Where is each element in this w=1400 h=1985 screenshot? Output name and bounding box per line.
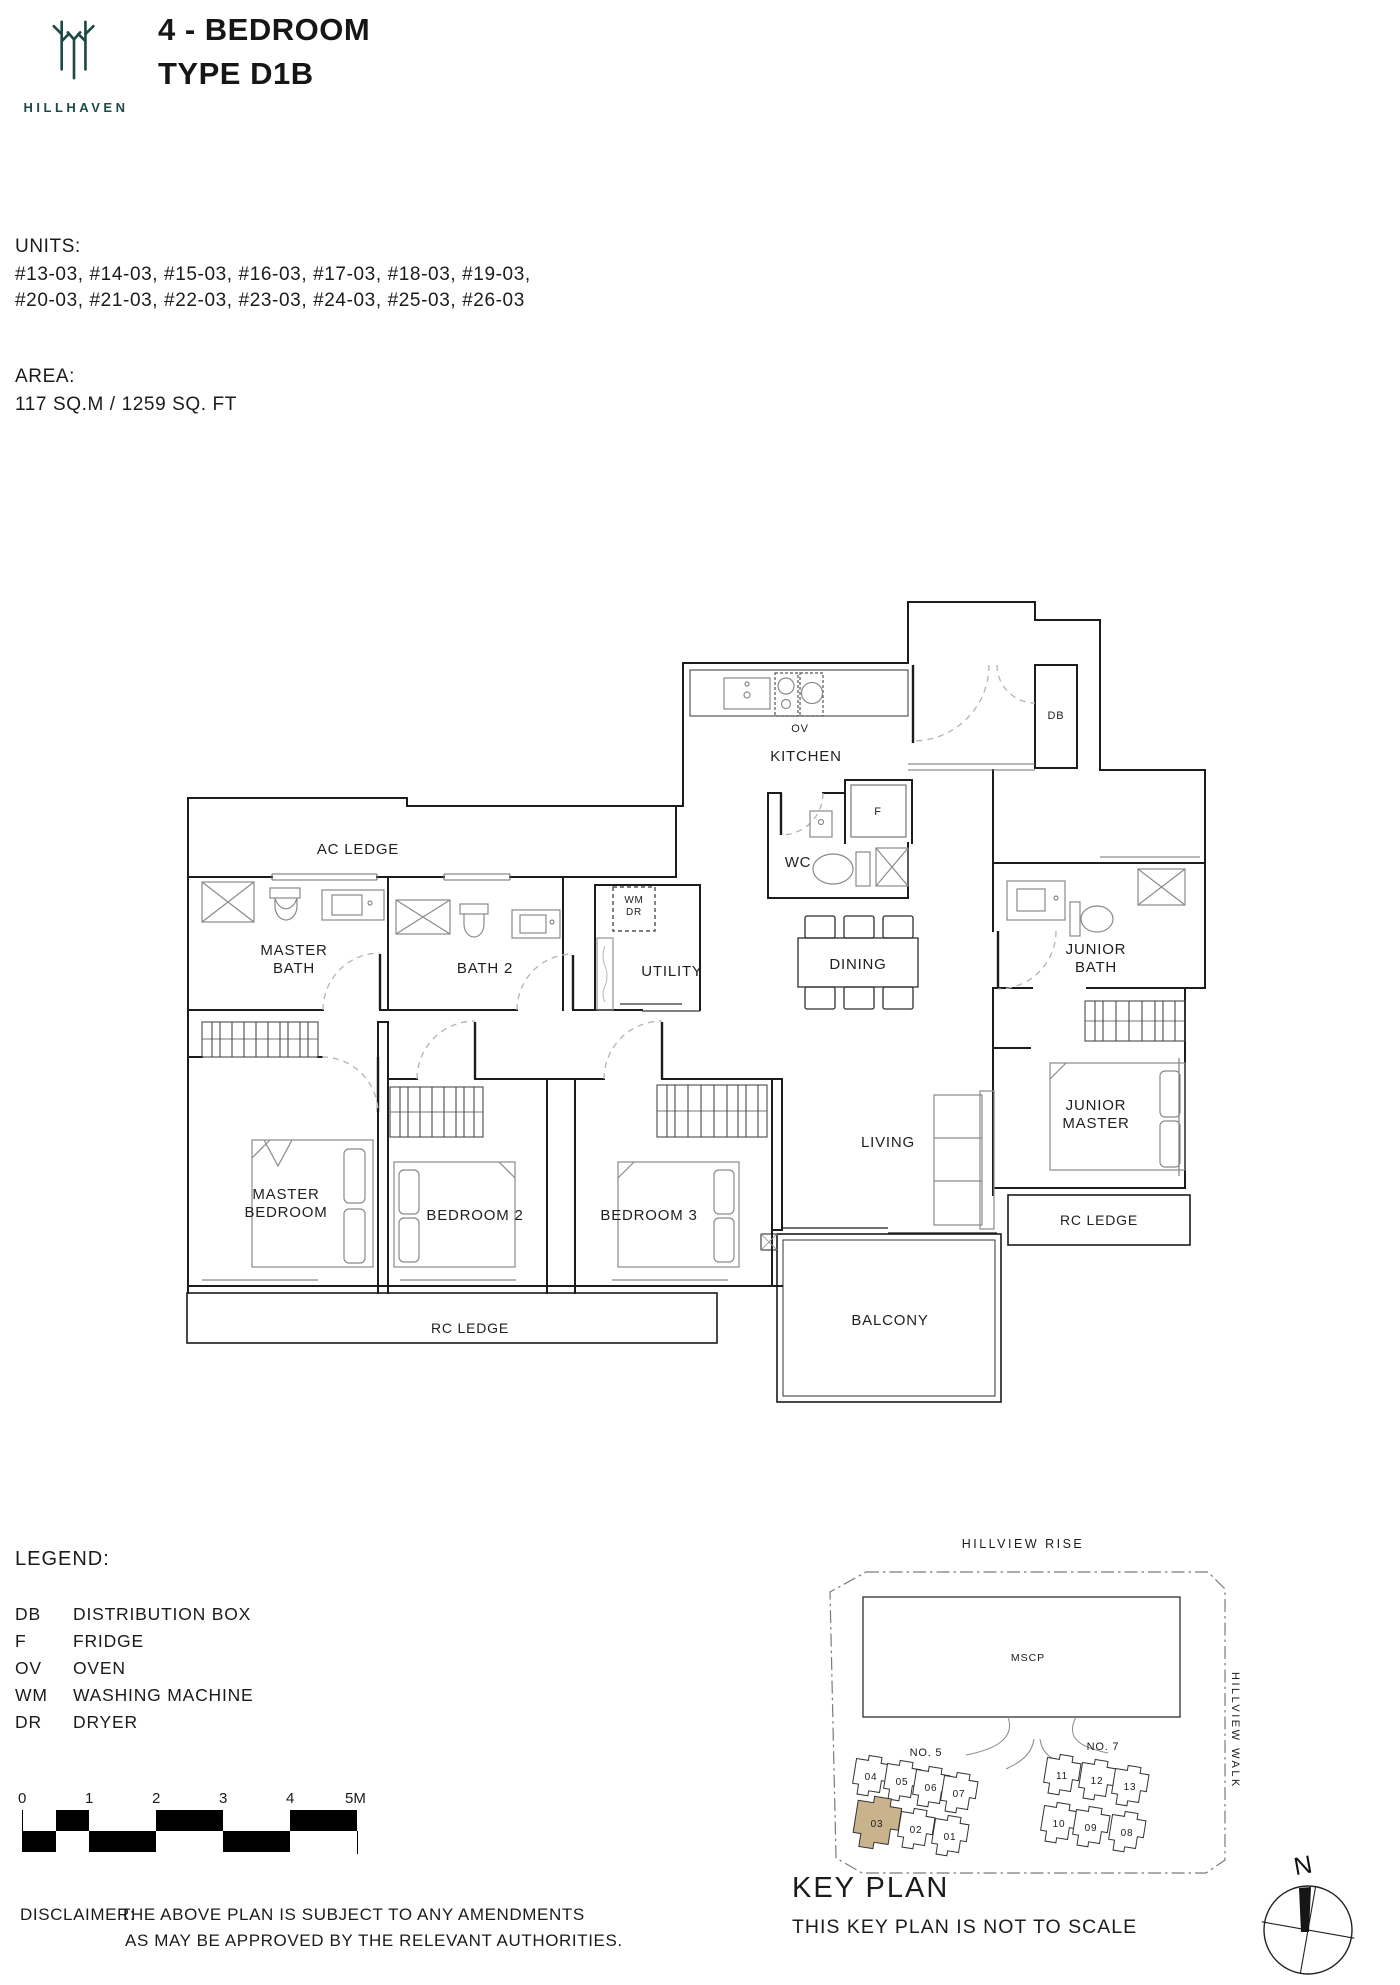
brand-name: HILLHAVEN (16, 100, 136, 115)
legend: LEGEND: DBDISTRIBUTION BOXFFRIDGEOVOVENW… (15, 1548, 375, 1736)
kitchen-counter (690, 670, 908, 716)
scale-label: 0 (18, 1790, 26, 1807)
disclaimer-line1: THE ABOVE PLAN IS SUBJECT TO ANY AMENDME… (120, 1905, 585, 1925)
unit-number: 06 (925, 1783, 938, 1794)
hob-right (800, 673, 823, 716)
road-label-right: HILLVIEW WALK (1229, 1672, 1241, 1789)
bath2-toilet-bowl (464, 914, 484, 937)
master-bath-fixtures (202, 882, 384, 922)
scale-label: 3 (219, 1790, 227, 1807)
units-line1: #13-03, #14-03, #15-03, #16-03, #17-03, … (15, 264, 531, 286)
room-label: WC (785, 854, 812, 871)
north-label: N (1292, 1850, 1315, 1881)
scale-label: 1 (85, 1790, 93, 1807)
door-leaves (378, 665, 998, 1112)
key-plan-subtitle: THIS KEY PLAN IS NOT TO SCALE (792, 1916, 1137, 1939)
room-label: BALCONY (851, 1312, 928, 1329)
room-label: JUNIOR (1066, 941, 1127, 958)
room-label: DINING (829, 956, 886, 973)
master-wardrobe (202, 1022, 318, 1057)
wardrobes (202, 1001, 1185, 1137)
bath2-toilet-tank (460, 904, 488, 914)
hillhaven-logo-icon (30, 14, 118, 100)
unit-number: 01 (944, 1832, 957, 1843)
unit-number: 04 (865, 1772, 878, 1783)
room-label: BEDROOM 3 (600, 1207, 697, 1224)
road-label-top: HILLVIEW RISE (962, 1537, 1085, 1551)
beds (252, 1063, 1185, 1267)
ledges (187, 1195, 1190, 1402)
room-label: OV (791, 723, 809, 735)
legend-item: OVOVEN (15, 1655, 375, 1682)
room-label: BEDROOM 2 (426, 1207, 523, 1224)
unit-number: 07 (953, 1789, 966, 1800)
junior-wardrobe (1085, 1001, 1185, 1041)
room-label: AC LEDGE (317, 841, 399, 858)
units-label: UNITS: (15, 236, 81, 258)
key-plan-units: 04050607030201111213100908 (851, 1753, 1150, 1859)
unit-number: 12 (1091, 1776, 1104, 1787)
room-label: MASTER (260, 942, 327, 959)
room-label: MASTER (1062, 1115, 1129, 1132)
unit-number: 11 (1056, 1771, 1068, 1782)
floorplan-brochure-page: HILLHAVEN 4 - BEDROOM TYPE D1B UNITS: #1… (0, 0, 1400, 1985)
area-value: 117 SQ.M / 1259 SQ. FT (15, 394, 237, 416)
wc-fixtures (810, 811, 908, 886)
utility-fixtures (597, 887, 700, 1011)
unit-number: 09 (1085, 1823, 1098, 1834)
wc-toilet-tank (856, 852, 870, 886)
unit-number: 03 (871, 1819, 884, 1830)
legend-item: WMWASHING MACHINE (15, 1682, 375, 1709)
balcony-sliding-door (781, 1228, 997, 1233)
kitchen-sink (724, 678, 770, 709)
unit-number: 08 (1121, 1828, 1134, 1839)
legend-item: DBDISTRIBUTION BOX (15, 1601, 375, 1628)
block-label: NO. 7 (1087, 1741, 1120, 1753)
room-label: F (874, 806, 882, 818)
page-subtitle: TYPE D1B (158, 56, 314, 92)
junior-bath-fixtures (1007, 869, 1185, 936)
junior-bath-toilet-tank (1070, 902, 1080, 936)
legend-item: FFRIDGE (15, 1628, 375, 1655)
room-label: RC LEDGE (1060, 1212, 1138, 1228)
bath2-fixtures (396, 900, 560, 938)
room-label: WM (624, 895, 643, 906)
scale-label: 4 (286, 1790, 294, 1807)
scale-bar: 012345M (15, 1790, 375, 1860)
room-label: BATH 2 (457, 960, 513, 977)
room-label: RC LEDGE (431, 1320, 509, 1336)
area-label: AREA: (15, 366, 75, 388)
floor-plan-drawing: AC LEDGEOVKITCHENDBFWCDININGMASTERBATHBA… (172, 598, 1212, 1408)
compass-needle (1299, 1887, 1311, 1932)
wc-toilet-bowl (813, 854, 853, 884)
legend-item: DRDRYER (15, 1709, 375, 1736)
key-plan-title: KEY PLAN (792, 1872, 949, 1905)
master-bath-toilet-bowl (275, 898, 297, 920)
unit-number: 05 (896, 1777, 909, 1788)
mscp-label: MSCP (1011, 1652, 1045, 1664)
unit-number: 13 (1124, 1782, 1137, 1793)
room-label: UTILITY (641, 963, 702, 980)
room-label: JUNIOR (1066, 1097, 1127, 1114)
junior-bath-toilet-bowl (1081, 906, 1113, 932)
walls (188, 602, 1205, 1293)
unit-number: 10 (1053, 1819, 1066, 1830)
utility-cabinet (597, 938, 613, 1010)
room-label: DB (1048, 710, 1065, 722)
bedroom3-wardrobe (657, 1085, 767, 1137)
scale-label: 2 (152, 1790, 160, 1807)
block-labels: NO. 5NO. 7 (910, 1741, 1120, 1759)
unit-number: 02 (910, 1825, 923, 1836)
room-label: BATH (273, 960, 315, 977)
disclaimer-label: DISCLAIMER: (20, 1905, 135, 1925)
units-line2: #20-03, #21-03, #22-03, #23-03, #24-03, … (15, 290, 525, 312)
room-label: BEDROOM (244, 1204, 327, 1221)
scale-label: 5M (345, 1790, 366, 1807)
north-compass-icon: N (1248, 1846, 1368, 1980)
room-label: DR (626, 907, 642, 918)
room-label: KITCHEN (770, 748, 841, 765)
room-label: BATH (1075, 959, 1117, 976)
disclaimer-line2: AS MAY BE APPROVED BY THE RELEVANT AUTHO… (125, 1931, 623, 1951)
master-bath-toilet-tank (270, 888, 300, 898)
sofa (934, 1091, 994, 1229)
block-label: NO. 5 (910, 1747, 943, 1759)
room-label: MASTER (252, 1186, 319, 1203)
room-label: LIVING (861, 1134, 915, 1151)
page-title: 4 - BEDROOM (158, 12, 370, 48)
legend-title: LEGEND: (15, 1548, 375, 1571)
door-swing-arcs (322, 665, 1056, 1113)
bedroom2-wardrobe (390, 1087, 483, 1137)
